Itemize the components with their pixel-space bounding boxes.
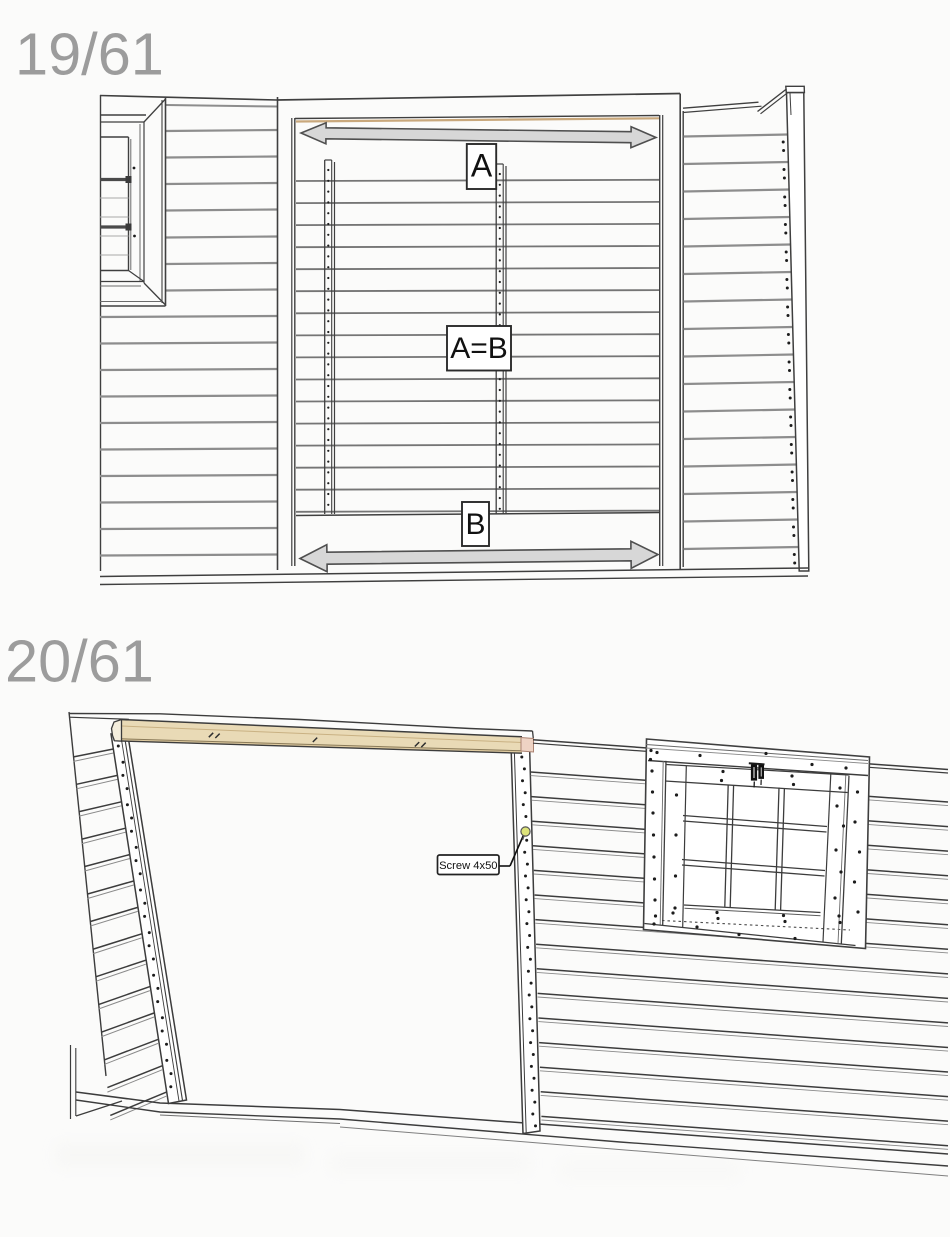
svg-text:A: A xyxy=(471,148,493,184)
svg-text:19/61: 19/61 xyxy=(15,21,164,88)
svg-text:Screw 4x50: Screw 4x50 xyxy=(439,860,497,872)
svg-text:B: B xyxy=(465,508,485,541)
svg-text:A=B: A=B xyxy=(450,332,508,365)
svg-text:20/61: 20/61 xyxy=(5,628,154,695)
